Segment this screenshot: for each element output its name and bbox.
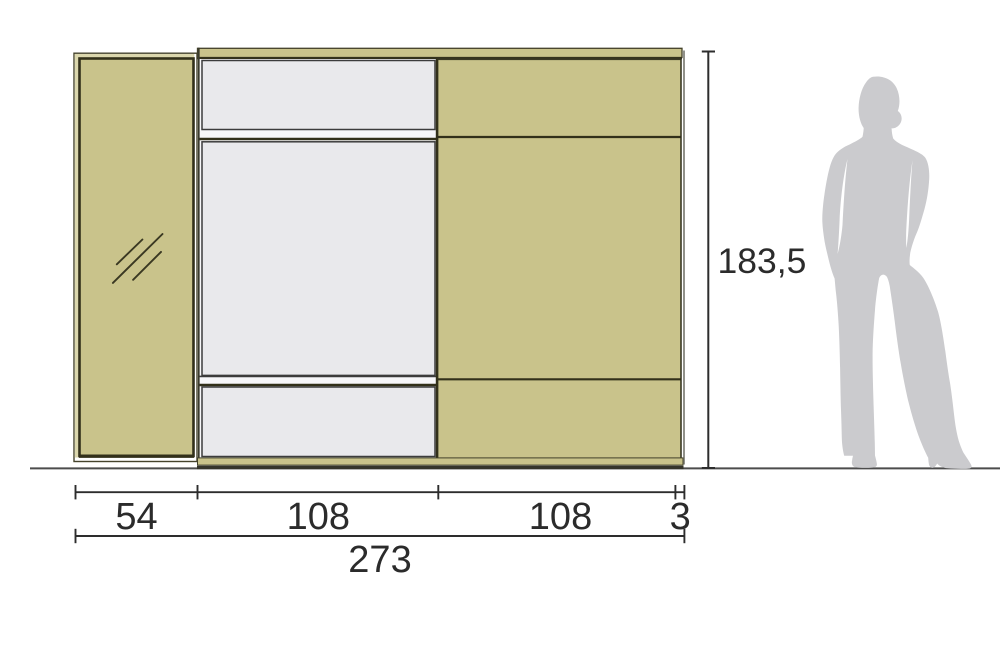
svg-text:108: 108 [287, 496, 350, 538]
svg-text:108: 108 [529, 496, 592, 538]
svg-text:3: 3 [670, 496, 691, 538]
svg-text:54: 54 [115, 496, 157, 538]
svg-text:183,5: 183,5 [718, 241, 807, 281]
svg-text:273: 273 [348, 539, 411, 581]
